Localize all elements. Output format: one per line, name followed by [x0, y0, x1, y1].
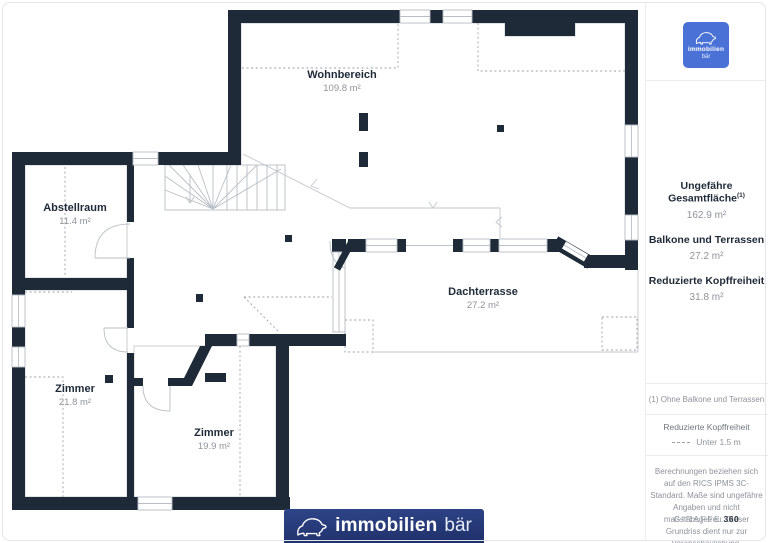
provider-logo: GIRAFFE 360: [645, 514, 768, 524]
legend-item-label: Unter 1.5 m: [696, 437, 740, 447]
footnote-marker: (1): [737, 192, 745, 199]
metric-value-headroom: 31.8 m²: [645, 292, 768, 303]
footnote-text: (1) Ohne Balkone und Terrassen: [649, 395, 764, 404]
dashed-line-sample: [672, 442, 690, 443]
metric-label-headroom: Reduzierte Kopffreiheit: [645, 275, 768, 287]
room-area: 109.8 m²: [323, 83, 361, 94]
banner-text-main: immobilien: [335, 515, 437, 537]
room-name: Wohnbereich: [307, 69, 377, 81]
sidebar-section-divider: [646, 80, 766, 81]
bear-icon: [695, 30, 717, 45]
footnote-box: (1) Ohne Balkone und Terrassen: [645, 383, 768, 415]
floorplan-page: Wohnbereich 109.8 m² Abstellraum 11.4 m²…: [0, 0, 768, 543]
provider-suffix: 360: [724, 514, 740, 524]
room-name: Zimmer: [194, 427, 234, 439]
legend-title: Reduzierte Kopffreiheit: [663, 422, 749, 432]
room-area: 21.8 m²: [59, 397, 91, 408]
room-name: Zimmer: [55, 383, 95, 395]
immobilienbaer-banner: immobilienbär: [284, 509, 484, 543]
legend-row: Unter 1.5 m: [672, 437, 740, 447]
bear-icon: [296, 515, 328, 537]
metric-value-total: 162.9 m²: [645, 210, 768, 221]
room-name: Abstellraum: [43, 202, 107, 214]
room-label-zimmer-1: Zimmer 21.8 m²: [55, 383, 95, 408]
metric-label-balconies: Balkone und Terrassen: [645, 234, 768, 246]
reduced-headroom-lines: [25, 23, 625, 497]
metric-label-total: Ungefähre Gesamtfläche(1): [645, 180, 768, 205]
provider-name: GIRAFFE: [674, 514, 721, 524]
room-area: 19.9 m²: [198, 441, 230, 452]
room-label-zimmer-2: Zimmer 19.9 m²: [194, 427, 234, 452]
metric-value-balconies: 27.2 m²: [645, 251, 768, 262]
terrace-outline: [345, 270, 638, 352]
disclaimer-text: Berechnungen beziehen sich auf den RICS …: [650, 466, 763, 543]
immobilienbaer-logo-card: immobilien bär: [683, 22, 729, 68]
logo-text-accent: bär: [702, 54, 711, 60]
room-label-abstellraum: Abstellraum 11.4 m²: [43, 202, 107, 227]
floorplan-drawing: Wohnbereich 109.8 m² Abstellraum 11.4 m²…: [0, 0, 645, 543]
stairs: [165, 165, 285, 210]
room-label-wohnbereich: Wohnbereich 109.8 m²: [307, 69, 377, 94]
room-area: 27.2 m²: [467, 300, 499, 311]
room-name: Dachterrasse: [448, 286, 518, 298]
slope-lines: [243, 154, 502, 238]
headroom-legend: Reduzierte Kopffreiheit Unter 1.5 m: [645, 414, 768, 456]
room-outlines: [25, 23, 625, 497]
room-label-dachterrasse: Dachterrasse 27.2 m²: [448, 286, 518, 311]
room-area: 11.4 m²: [59, 216, 91, 227]
logo-text-main: immobilien: [688, 46, 724, 53]
area-metrics: Ungefähre Gesamtfläche(1) 162.9 m² Balko…: [645, 180, 768, 316]
banner-text-accent: bär: [444, 515, 471, 537]
